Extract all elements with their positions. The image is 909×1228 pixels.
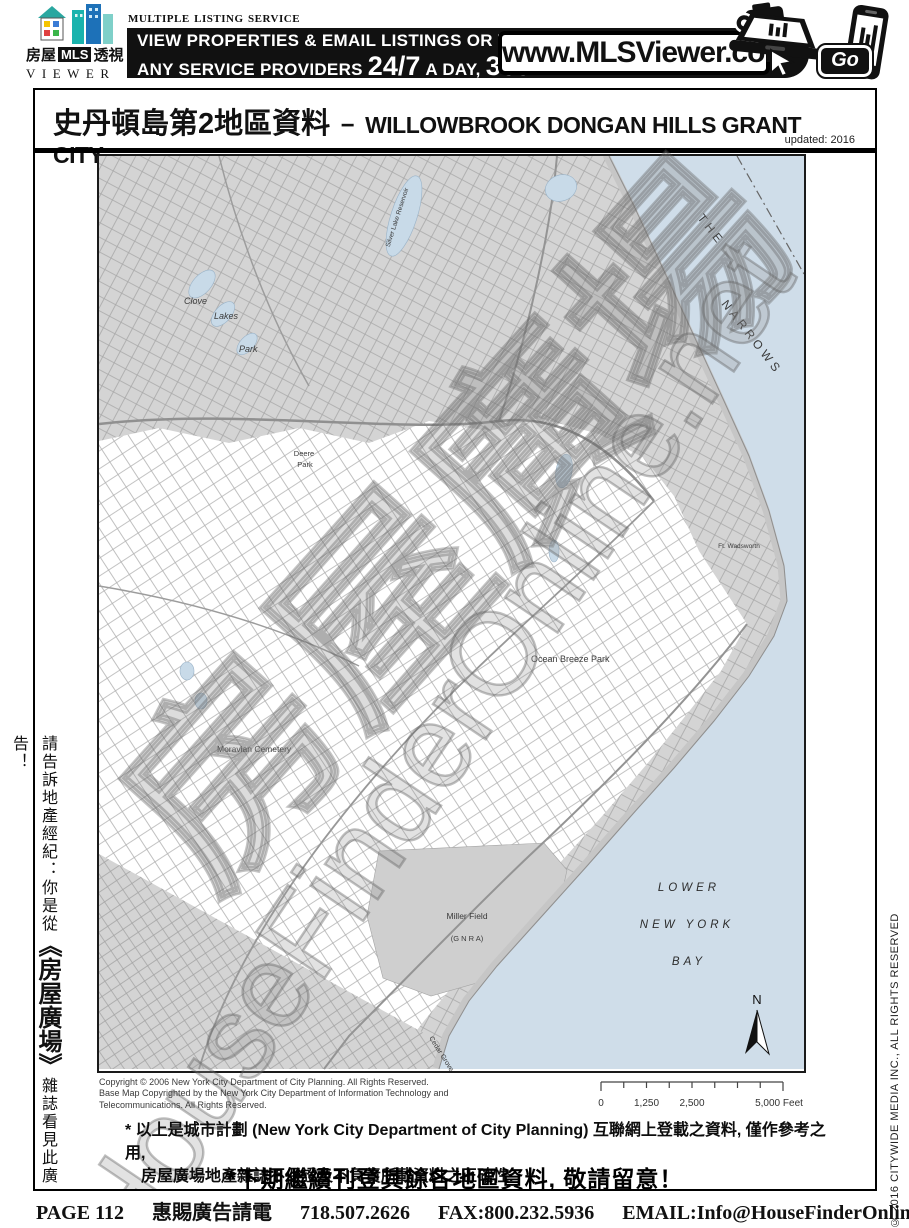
label-deere-park: Park	[297, 460, 313, 469]
masthead: 房屋 MLS 透視 VIEWER Multiple Listing Servic…	[0, 0, 909, 86]
mls-service-title: Multiple Listing Service	[128, 9, 300, 27]
banner-24-7: 24/7	[368, 51, 421, 82]
logo-zh-left: 房屋	[26, 44, 56, 65]
label-lakes: Lakes	[214, 311, 239, 321]
scale-2500: 2,500	[679, 1098, 704, 1109]
svg-text:N: N	[752, 992, 761, 1007]
updated-label: updated: 2016	[785, 134, 855, 146]
footer-page-number: PAGE 112	[36, 1202, 124, 1225]
label-bay-bay: BAY	[672, 956, 706, 968]
title-rule	[35, 148, 875, 153]
scale-0: 0	[598, 1098, 604, 1109]
label-ocean-breeze-park: Ocean Breeze Park	[531, 654, 610, 664]
buildings-icon	[36, 2, 128, 46]
disclaimer-line1: * 以上是城市計劃 (New York City Department of C…	[125, 1119, 845, 1165]
logo-zh-right: 透視	[93, 44, 123, 65]
label-moravian-cemetery: Moravian Cemetery	[217, 744, 292, 754]
banner-a-day: A DAY,	[425, 60, 480, 80]
label-miller-field: Miller Field	[446, 911, 487, 921]
map-copyright: Copyright © 2006 New York City Departmen…	[99, 1077, 449, 1111]
scale-1250: 1,250	[634, 1098, 659, 1109]
logo-mls-badge: MLS	[58, 47, 91, 62]
scale-bar: 0 1,250 2,500 5,000 Feet	[595, 1076, 807, 1112]
label-gnra: (G N R A)	[451, 934, 484, 943]
right-vertical-copyright: © 2016 CITYWIDE MEDIA INC., ALL RIGHTS R…	[889, 893, 901, 1228]
slogan-brand: 《房屋廣場》	[34, 933, 60, 1077]
label-bay-newyork: NEW YORK	[640, 919, 734, 931]
label-park: Park	[239, 344, 258, 354]
logo-viewer-text: VIEWER	[26, 66, 126, 82]
footer-phone: 718.507.2626	[300, 1202, 410, 1225]
footer-fax: FAX:800.232.5936	[438, 1202, 594, 1225]
page-title-row: 史丹頓島第2地區資料 − WILLOWBROOK DONGAN HILLS GR…	[35, 90, 875, 148]
next-issue-notice: *下期繼續刊登其餘各地區資料, 敬請留意！	[35, 1160, 875, 1191]
slogan-pre: 請告訴地產經紀：你是從	[39, 735, 56, 933]
copyright-line2: Base Map Copyrighted by the New York Cit…	[99, 1088, 449, 1099]
left-vertical-slogan: 請告訴地產經紀：你是從《房屋廣場》雜誌看見此廣告！	[6, 735, 65, 1207]
banner-line2-pre: ANY SERVICE PROVIDERS	[137, 60, 363, 80]
page-frame: 史丹頓島第2地區資料 − WILLOWBROOK DONGAN HILLS GR…	[33, 88, 877, 1191]
page-title-zh: 史丹頓島第2地區資料	[53, 108, 330, 140]
label-clove: Clove	[184, 296, 207, 306]
label-bay-lower: LOWER	[658, 882, 720, 894]
scale-5000: 5,000 Feet	[755, 1098, 803, 1109]
copyright-line3: Telecommunications. All Rights Reserved.	[99, 1100, 449, 1111]
label-ft-wadsworth: Ft. Wadsworth	[718, 543, 760, 550]
go-button[interactable]: Go	[818, 45, 872, 77]
footer-email: EMAIL:Info@HouseFinderOnline.net	[622, 1202, 909, 1225]
title-separator: −	[335, 112, 361, 139]
copyright-line1: Copyright © 2006 New York City Departmen…	[99, 1077, 449, 1088]
page-footer: PAGE 112 惠賜廣告請電 718.507.2626 FAX:800.232…	[0, 1196, 909, 1225]
staten-island-district-map: Clove Lakes Park Silver Lake Reservoir D…	[97, 154, 806, 1073]
mls-viewer-logo: 房屋 MLS 透視 VIEWER	[26, 2, 126, 82]
footer-ad-text: 惠賜廣告請電	[152, 1196, 272, 1225]
cursor-icon	[768, 48, 798, 78]
label-deere: Deere	[294, 449, 314, 458]
